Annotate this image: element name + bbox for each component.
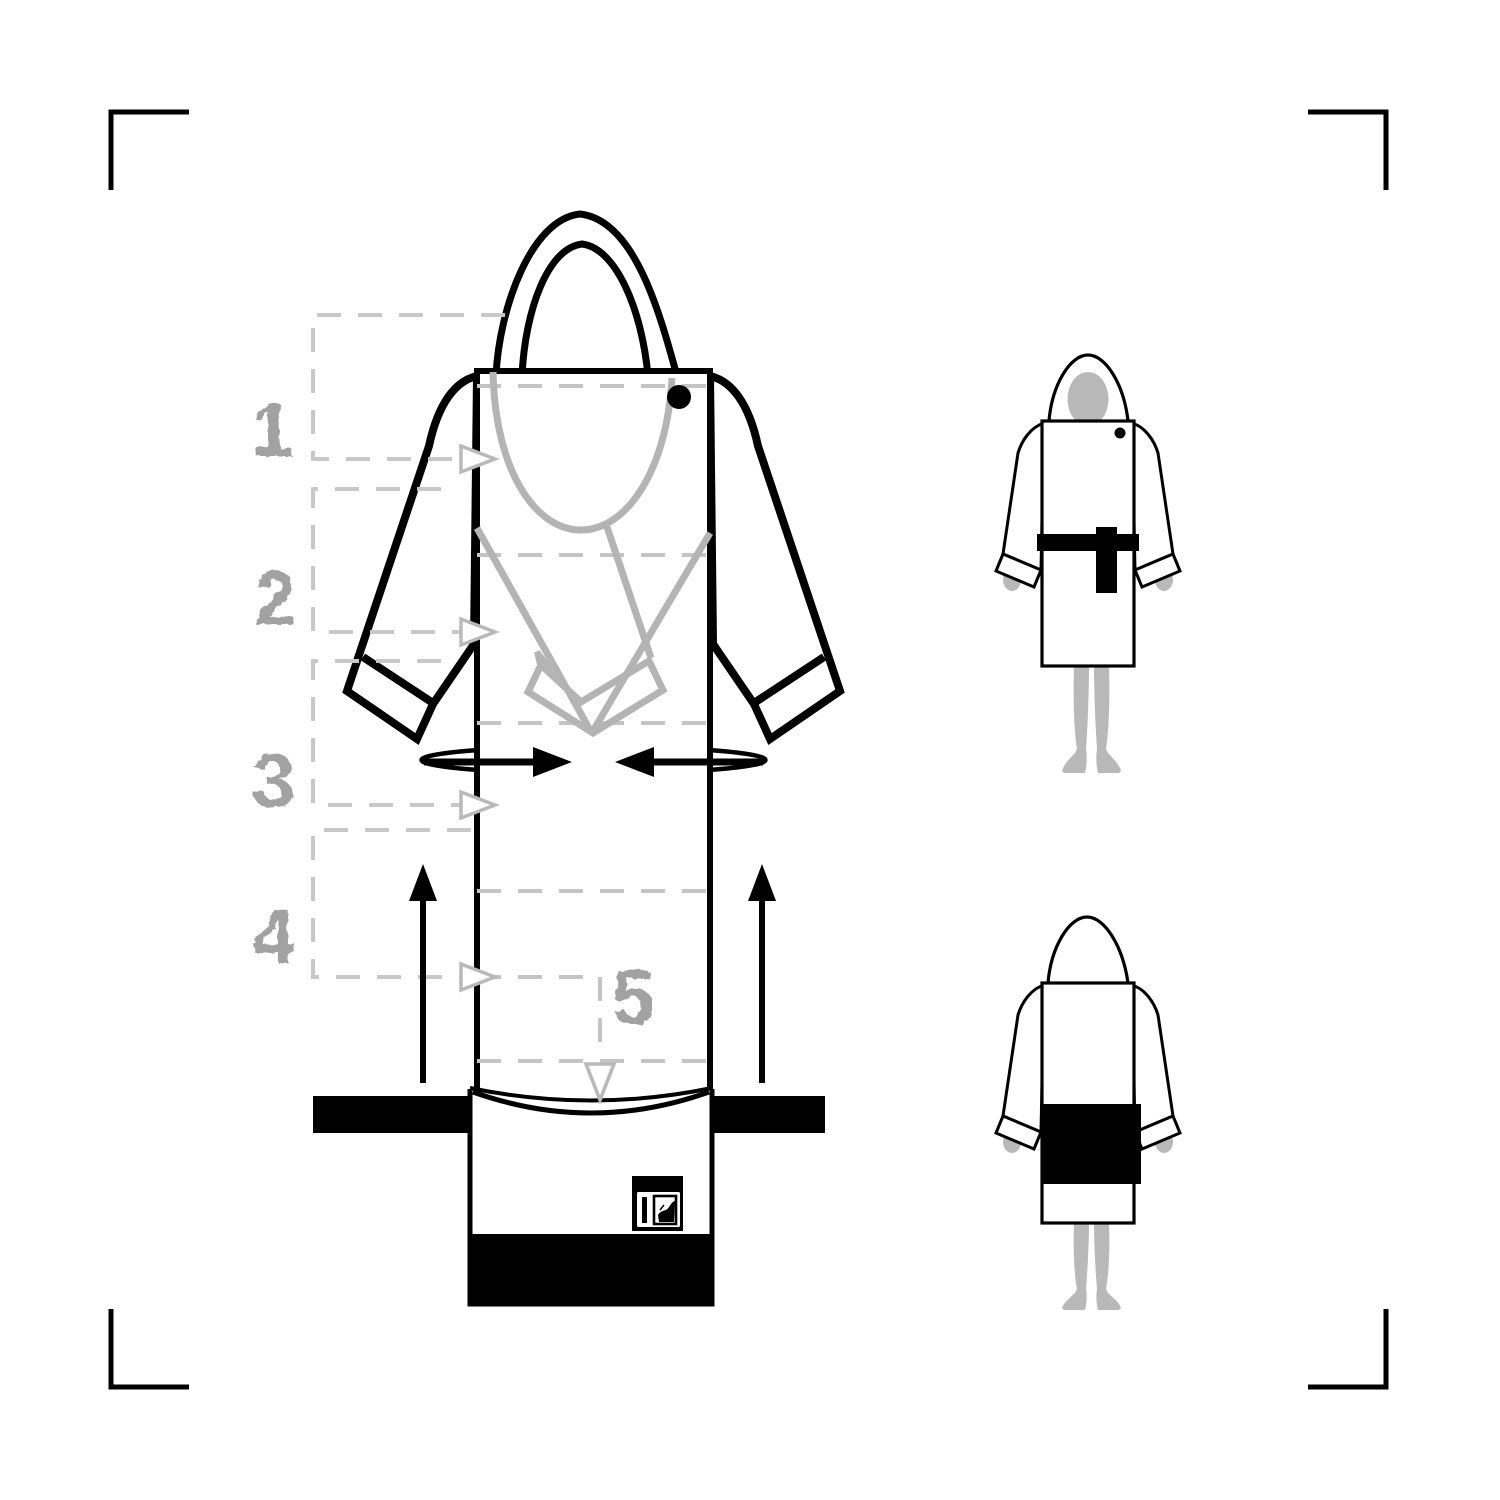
svg-text:5: 5 — [612, 955, 655, 1041]
svg-text:4: 4 — [253, 894, 296, 980]
svg-text:3: 3 — [252, 738, 295, 824]
svg-text:2: 2 — [254, 556, 297, 642]
svg-text:1: 1 — [251, 387, 294, 473]
